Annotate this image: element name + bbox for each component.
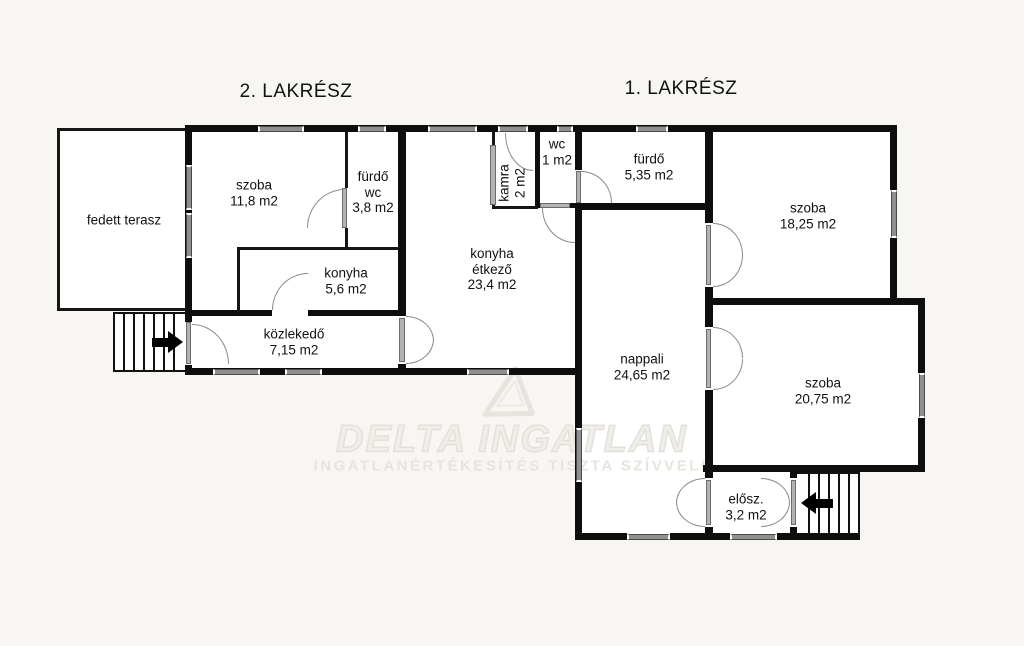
- entry-arrow-right: [816, 499, 833, 508]
- room-name: közlekedő: [264, 327, 325, 343]
- room-label-furdo-wc: fürdő wc 3,8 m2: [352, 169, 393, 216]
- wall-kamra-wc: [535, 132, 540, 206]
- room-area: 23,4 m2: [468, 277, 517, 293]
- room-name: wc: [352, 184, 393, 200]
- room-area: 7,15 m2: [264, 342, 325, 358]
- door-leaf: [186, 322, 191, 364]
- window: [213, 369, 260, 375]
- room-name: nappali: [614, 352, 670, 368]
- section-title-right: 1. LAKRÉSZ: [625, 78, 738, 100]
- wall-elosz-stairs-a: [790, 465, 797, 478]
- room-name: kamra: [497, 164, 513, 202]
- wall-szoba1b-right-a: [918, 298, 925, 373]
- wall-szoba1a-right-a: [890, 125, 897, 190]
- wall-szoba2-nook: [237, 247, 240, 312]
- wall-left-lower: [185, 365, 192, 375]
- floor-plan: 2. LAKRÉSZ 1. LAKRÉSZ DELTA INGATLAN ING…: [0, 0, 1024, 646]
- room-area: 18,25 m2: [780, 216, 836, 232]
- room-area: 20,75 m2: [795, 391, 851, 407]
- room-name: konyha: [324, 266, 368, 282]
- room-area: 1 m2: [542, 152, 572, 168]
- wall-elosz-stairs-b: [790, 527, 797, 540]
- room-name: szoba: [795, 376, 851, 392]
- stair-tread: [133, 312, 135, 372]
- window: [186, 213, 192, 258]
- door-leaf: [540, 203, 570, 208]
- room-label-furdo-1lakresz: fürdő 5,35 m2: [625, 152, 674, 183]
- window: [891, 190, 897, 238]
- room-label-kamra: kamra 2 m2: [497, 164, 528, 202]
- stair-tread: [848, 472, 850, 536]
- room-area: 5,35 m2: [625, 167, 674, 183]
- room-label-szoba-1b: szoba 20,75 m2: [795, 376, 851, 407]
- room-name: szoba: [780, 201, 836, 217]
- room-label-wc: wc 1 m2: [542, 137, 572, 168]
- room-name: wc: [542, 137, 572, 153]
- room-label-konyha-2lakresz: konyha 5,6 m2: [324, 266, 368, 297]
- wall-shared-upper: [575, 125, 582, 170]
- room-name: fürdő: [625, 152, 674, 168]
- room-label-konyha-etkezo: konyha étkező 23,4 m2: [468, 246, 517, 293]
- stair-tread: [838, 472, 840, 536]
- wall-szoba2-furdowc-b: [345, 228, 348, 247]
- window: [627, 534, 670, 540]
- window: [576, 428, 582, 482]
- stair-tread: [143, 312, 145, 372]
- window: [919, 373, 925, 418]
- watermark-brand-text: DELTA INGATLAN: [336, 419, 688, 462]
- room-name: elősz.: [725, 492, 766, 508]
- wall-nappali-right-a: [705, 125, 713, 223]
- room-area: 5,6 m2: [324, 281, 368, 297]
- room-label-szoba-2lakresz: szoba 11,8 m2: [230, 178, 278, 209]
- wall-nappali-right-d: [705, 527, 713, 540]
- stairs-right-edge: [858, 472, 860, 538]
- door-leaf: [490, 145, 496, 205]
- section-title-left: 2. LAKRÉSZ: [240, 81, 353, 103]
- room-area: 24,65 m2: [614, 367, 670, 383]
- wall-kamra-bottom: [492, 206, 538, 209]
- window: [186, 165, 192, 210]
- wall-szoba1b-right-b: [918, 418, 925, 472]
- room-name: fedett terasz: [87, 212, 161, 227]
- wall-furdo1-bottom: [575, 203, 713, 210]
- stairs-left-edge: [113, 312, 115, 372]
- wall-terasz-left: [57, 128, 60, 310]
- window: [258, 126, 304, 132]
- window: [358, 126, 386, 132]
- room-area: 11,8 m2: [230, 193, 278, 209]
- room-area: 2 m2: [512, 164, 528, 202]
- wall-kozlekedo-top-b: [308, 310, 404, 316]
- door-leaf: [706, 480, 711, 525]
- wall-terasz-bottom: [57, 308, 187, 311]
- wall-nappali-right-c: [705, 390, 713, 478]
- door-leaf: [576, 171, 581, 203]
- wall-kozlekedo-top-a: [185, 310, 272, 316]
- door-leaf: [791, 480, 796, 525]
- room-label-fedett-terasz: fedett terasz: [87, 212, 161, 228]
- wall-etkezo-left-post: [398, 364, 406, 375]
- window: [730, 534, 777, 540]
- entry-arrow-left-head: [168, 331, 183, 353]
- window: [467, 369, 509, 375]
- wall-bottom-right-a: [575, 533, 627, 540]
- door-leaf: [399, 318, 405, 362]
- wall-szoba1b-bottom: [703, 465, 925, 472]
- room-label-szoba-1a: szoba 18,25 m2: [780, 201, 836, 232]
- wall-shared-mid: [575, 203, 582, 375]
- wall-nappali-right-b: [705, 287, 713, 327]
- room-area: 3,8 m2: [352, 200, 393, 216]
- wall-szoba2-furdowc-a: [345, 132, 348, 188]
- room-area: 3,2 m2: [725, 507, 766, 523]
- room-name: konyha: [468, 246, 517, 262]
- room-name: étkező: [468, 261, 517, 277]
- watermark-slogan-text: INGATLANÉRTÉKESÍTÉS TISZTA SZÍVVEL!: [314, 458, 709, 475]
- room-label-eloszoba: elősz. 3,2 m2: [725, 492, 766, 523]
- wall-etkezo-left: [398, 125, 406, 316]
- entry-arrow-left: [152, 338, 169, 347]
- door-leaf: [706, 329, 711, 388]
- window: [285, 369, 322, 375]
- stair-tread: [123, 312, 125, 372]
- window: [428, 126, 477, 132]
- entry-arrow-right-head: [801, 492, 816, 514]
- window: [498, 126, 528, 132]
- wall-bottom-right-b: [670, 533, 730, 540]
- room-name: fürdő: [352, 169, 393, 185]
- window: [636, 126, 668, 132]
- window: [557, 126, 573, 132]
- wall-konyha-top: [237, 247, 400, 250]
- room-name: szoba: [230, 178, 278, 194]
- room-label-kozlekedo: közlekedő 7,15 m2: [264, 327, 325, 358]
- wall-szoba1a-right-b: [890, 238, 897, 305]
- door-leaf: [342, 188, 347, 228]
- wall-terasz-top: [57, 128, 187, 131]
- door-leaf: [706, 225, 711, 285]
- room-label-nappali: nappali 24,65 m2: [614, 352, 670, 383]
